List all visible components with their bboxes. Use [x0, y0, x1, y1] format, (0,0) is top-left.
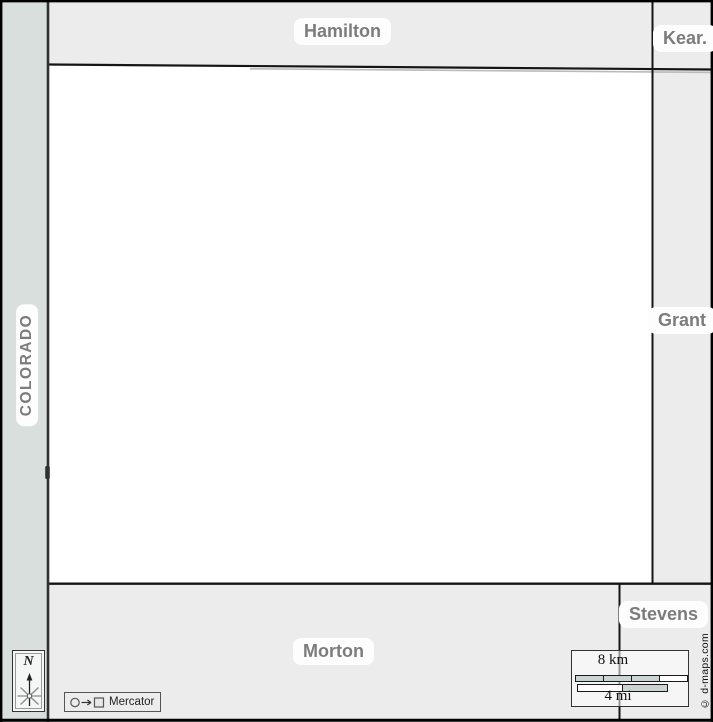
- label-kearny: Kear.: [653, 25, 713, 52]
- map-base-svg: [0, 0, 713, 722]
- label-morton: Morton: [293, 638, 374, 665]
- projection-label: Mercator: [109, 696, 154, 708]
- scale-bar: 8 km 4 mi: [571, 650, 689, 707]
- scale-segment: [631, 676, 659, 681]
- map-canvas: Hamilton Kear. Grant Stevens Morton COLO…: [0, 0, 713, 722]
- state-border-kink: [45, 466, 50, 479]
- projection-symbols-icon: [69, 696, 105, 709]
- label-colorado: COLORADO: [16, 304, 38, 426]
- scale-km-label: 8 km: [574, 652, 652, 669]
- label-stevens: Stevens: [619, 601, 708, 628]
- county-shape: [48, 65, 653, 584]
- label-hamilton: Hamilton: [294, 18, 391, 45]
- compass-rose: N: [12, 650, 45, 712]
- scale-segment: [576, 676, 603, 681]
- scale-bar-km: [575, 675, 688, 682]
- projection-indicator: Mercator: [64, 692, 161, 712]
- label-grant: Grant: [648, 307, 713, 334]
- compass-star-icon: [13, 670, 46, 710]
- scale-segment: [603, 676, 631, 681]
- scale-mi-label: 4 mi: [576, 688, 660, 705]
- compass-north-label: N: [13, 654, 44, 670]
- scale-segment: [659, 676, 687, 681]
- copyright-credit: © d-maps.com: [699, 633, 711, 709]
